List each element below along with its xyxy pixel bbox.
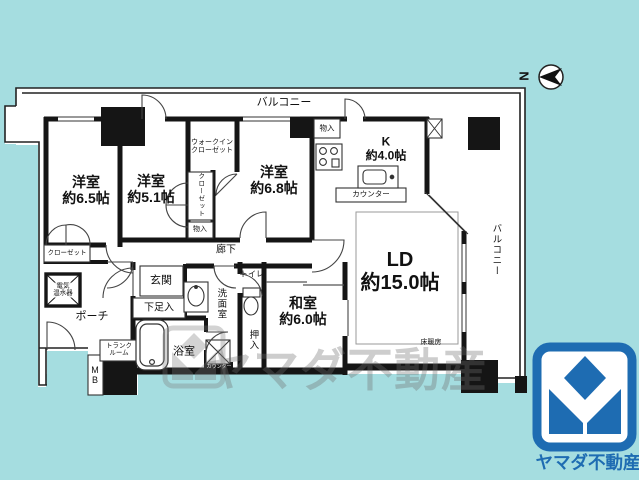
- label-counter: カウンター: [352, 191, 390, 200]
- label-western-room-6-5: 洋室 約6.5帖: [62, 175, 109, 207]
- label-meter-box: M B: [91, 365, 99, 386]
- brand-logo-icon: [537, 347, 632, 447]
- porch-cutout: [47, 351, 88, 395]
- label-porch: ポーチ: [76, 311, 109, 324]
- label-western-room-6-8: 洋室 約6.8帖: [250, 165, 297, 197]
- sink-icon: [358, 166, 398, 188]
- label-bathroom: 浴室: [173, 346, 195, 359]
- label-storage-strip: 物入: [193, 226, 207, 234]
- label-walkin-closet: ウォークイン クローゼット: [191, 139, 233, 155]
- north-label: N: [517, 71, 532, 80]
- label-closet-bottom-left: クローゼット: [48, 249, 87, 256]
- label-washroom: 洗面室: [215, 288, 226, 320]
- label-kitchen: K 約4.0帖: [366, 135, 407, 162]
- label-toilet: トイレ: [240, 269, 264, 278]
- label-closet-strip: クローゼット: [196, 173, 203, 218]
- label-hallway: 廊下: [216, 244, 236, 255]
- label-trunk-room: トランク ルーム: [105, 343, 133, 358]
- label-water-heater: 電気 温水器: [52, 283, 74, 298]
- stove-icon: [316, 144, 342, 170]
- label-western-room-5-1: 洋室 約5.1帖: [127, 174, 174, 206]
- label-genkan: 玄関: [150, 275, 172, 288]
- brand-logo-text: ヤマダ不動産: [536, 450, 639, 475]
- north-compass-icon: [539, 65, 563, 89]
- label-balcony-right: バルコニー: [490, 224, 501, 277]
- watermark-text: ヤマダ不動産: [206, 334, 488, 400]
- label-living-dining: LD 約15.0帖: [361, 249, 440, 295]
- label-shoe-cabinet: 下足入: [144, 302, 174, 313]
- label-japanese-room: 和室 約6.0帖: [279, 296, 326, 328]
- toilet-icon: [243, 288, 260, 315]
- floorplan-image: バルコニー洋室 約6.5帖洋室 約5.1帖ウォークイン クローゼット洋室 約6.…: [0, 0, 639, 480]
- label-balcony-top: バルコニー: [257, 97, 312, 110]
- washbasin-icon: [184, 282, 208, 312]
- floor-plan: [0, 0, 639, 480]
- label-storage-kitchen: 物入: [320, 125, 335, 134]
